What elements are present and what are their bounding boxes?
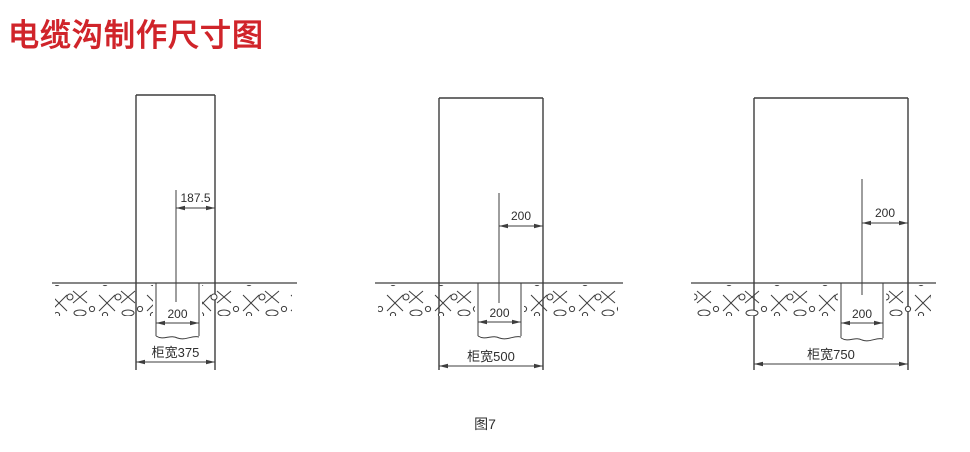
cabinet-width-dimension-arrowhead-right [206,360,215,364]
top-offset-dimension-arrowhead-right [899,221,908,225]
earth-hatch-right [202,285,292,316]
trench-width-dimension-arrowhead-right [874,321,883,325]
earth-hatch-left [55,285,153,316]
trench-width-dimension-label: 200 [852,307,872,321]
cabinet-width-dimension-arrowhead-left [439,364,448,368]
cabinet-width-dimension-arrowhead-right [899,362,908,366]
figure-caption: 图7 [0,414,970,434]
trench-width-dimension-arrowhead-left [478,320,487,324]
diagram-cabinet-width-750: 200200柜宽750 [691,98,936,370]
cabinet-width-dimension-arrowhead-left [136,360,145,364]
trench-width-dimension-arrowhead-left [156,321,165,325]
trench-width-dimension-label: 200 [489,306,509,320]
top-offset-dimension-arrowhead-left [862,221,871,225]
trench-break-line [156,336,199,339]
trench-break-line [478,336,521,339]
top-offset-dimension-arrowhead-right [534,224,543,228]
cabinet-width-dimension-arrowhead-left [754,362,763,366]
earth-hatch-left [378,285,475,316]
top-offset-dimension-label: 200 [511,209,531,223]
diagram-cabinet-width-500: 200200柜宽500 [375,98,623,370]
top-offset-dimension-arrowhead-right [206,206,215,210]
trench-width-dimension-arrowhead-right [512,320,521,324]
cabinet-width-dimension-label: 柜宽375 [152,345,200,360]
trench-width-dimension-arrowhead-left [841,321,850,325]
cabinet-width-dimension-arrowhead-right [534,364,543,368]
diagram-cabinet-width-375: 187.5200柜宽375 [52,95,297,370]
top-offset-dimension-arrowhead-left [499,224,508,228]
earth-hatch-left [694,285,838,316]
cabinet-width-dimension-label: 柜宽500 [467,349,515,364]
cabinet-width-dimension-label: 柜宽750 [807,347,855,362]
page-title: 电缆沟制作尺寸图 [8,10,264,55]
earth-hatch-right [886,285,931,316]
earth-hatch-right [524,285,618,316]
cable-trench-dimension-drawing: 187.5200柜宽375200200柜宽500200200柜宽750 [0,0,970,447]
top-offset-dimension-label: 200 [875,206,895,220]
trench-break-line [841,338,883,341]
top-offset-dimension-arrowhead-left [176,206,185,210]
trench-width-dimension-label: 200 [167,307,187,321]
trench-width-dimension-arrowhead-right [190,321,199,325]
top-offset-dimension-label: 187.5 [180,191,210,205]
